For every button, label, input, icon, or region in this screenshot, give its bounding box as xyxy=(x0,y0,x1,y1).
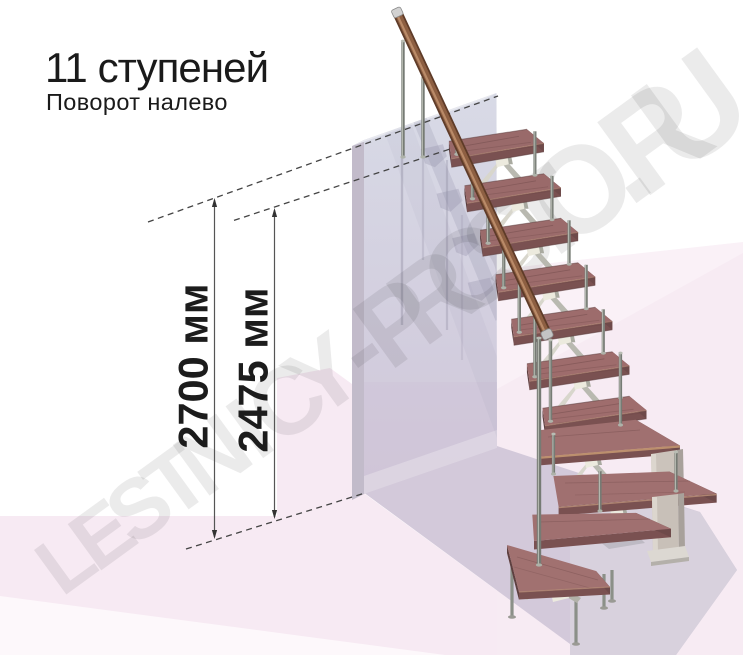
svg-text:11 ступеней: 11 ступеней xyxy=(45,44,268,91)
svg-text:2475 мм: 2475 мм xyxy=(230,287,277,452)
svg-text:2700 мм: 2700 мм xyxy=(170,283,217,448)
svg-text:Поворот налево: Поворот налево xyxy=(46,89,228,115)
